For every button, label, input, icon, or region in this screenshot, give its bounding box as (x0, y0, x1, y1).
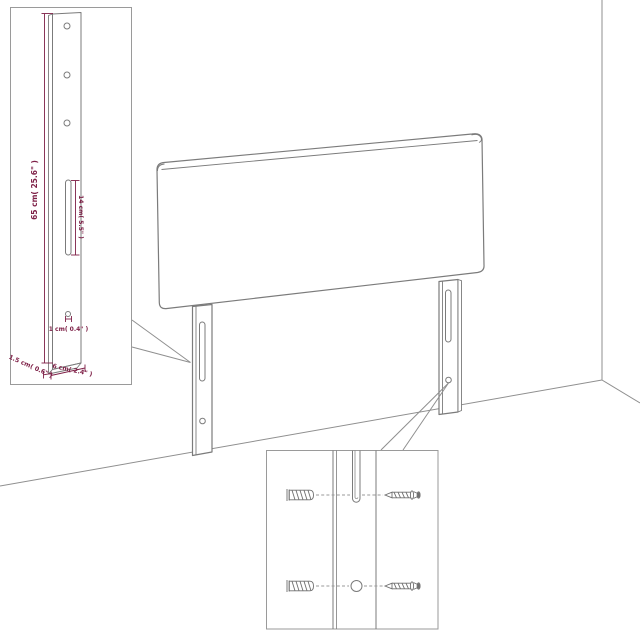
leg-side-face (49, 14, 53, 374)
mounting-detail-inset (267, 451, 439, 630)
callout-left-inset-lower (132, 347, 191, 363)
leg-small-hole (66, 312, 71, 317)
leg-detail-inset: 65 cm( 25.6" ) 14 cm( 5.5" ) 1 cm( 0.4" … (8, 8, 132, 385)
dim-slot-label: 14 cm( 5.5" ) (77, 195, 84, 239)
leg-hole-top (64, 23, 70, 29)
headboard (157, 134, 484, 456)
headboard-diagram-svg: 65 cm( 25.6" ) 14 cm( 5.5" ) 1 cm( 0.4" … (0, 0, 640, 640)
left-leg-hole (200, 418, 206, 424)
left-leg-slot (200, 322, 206, 381)
dim-hole-label: 1 cm( 0.4" ) (49, 326, 89, 333)
dim-height-label: 65 cm( 25.6" ) (30, 160, 39, 220)
leg-detail-drawing (49, 13, 82, 375)
callout-bottom-inset-right (403, 383, 449, 450)
callout-lines (132, 320, 449, 450)
headboard-left-leg (193, 305, 213, 456)
leg-hole-lower (64, 120, 70, 126)
right-leg-slot (446, 290, 452, 342)
headboard-right-leg (439, 280, 462, 415)
floor-line-right (602, 380, 640, 403)
callout-bottom-inset-left (381, 383, 449, 450)
right-leg-hole (446, 377, 452, 383)
headboard-panel (157, 134, 484, 309)
callout-left-inset-upper (132, 320, 191, 363)
leg-slot (66, 180, 72, 255)
product-diagram: 65 cm( 25.6" ) 14 cm( 5.5" ) 1 cm( 0.4" … (0, 0, 640, 640)
leg-hole-middle (64, 72, 70, 78)
